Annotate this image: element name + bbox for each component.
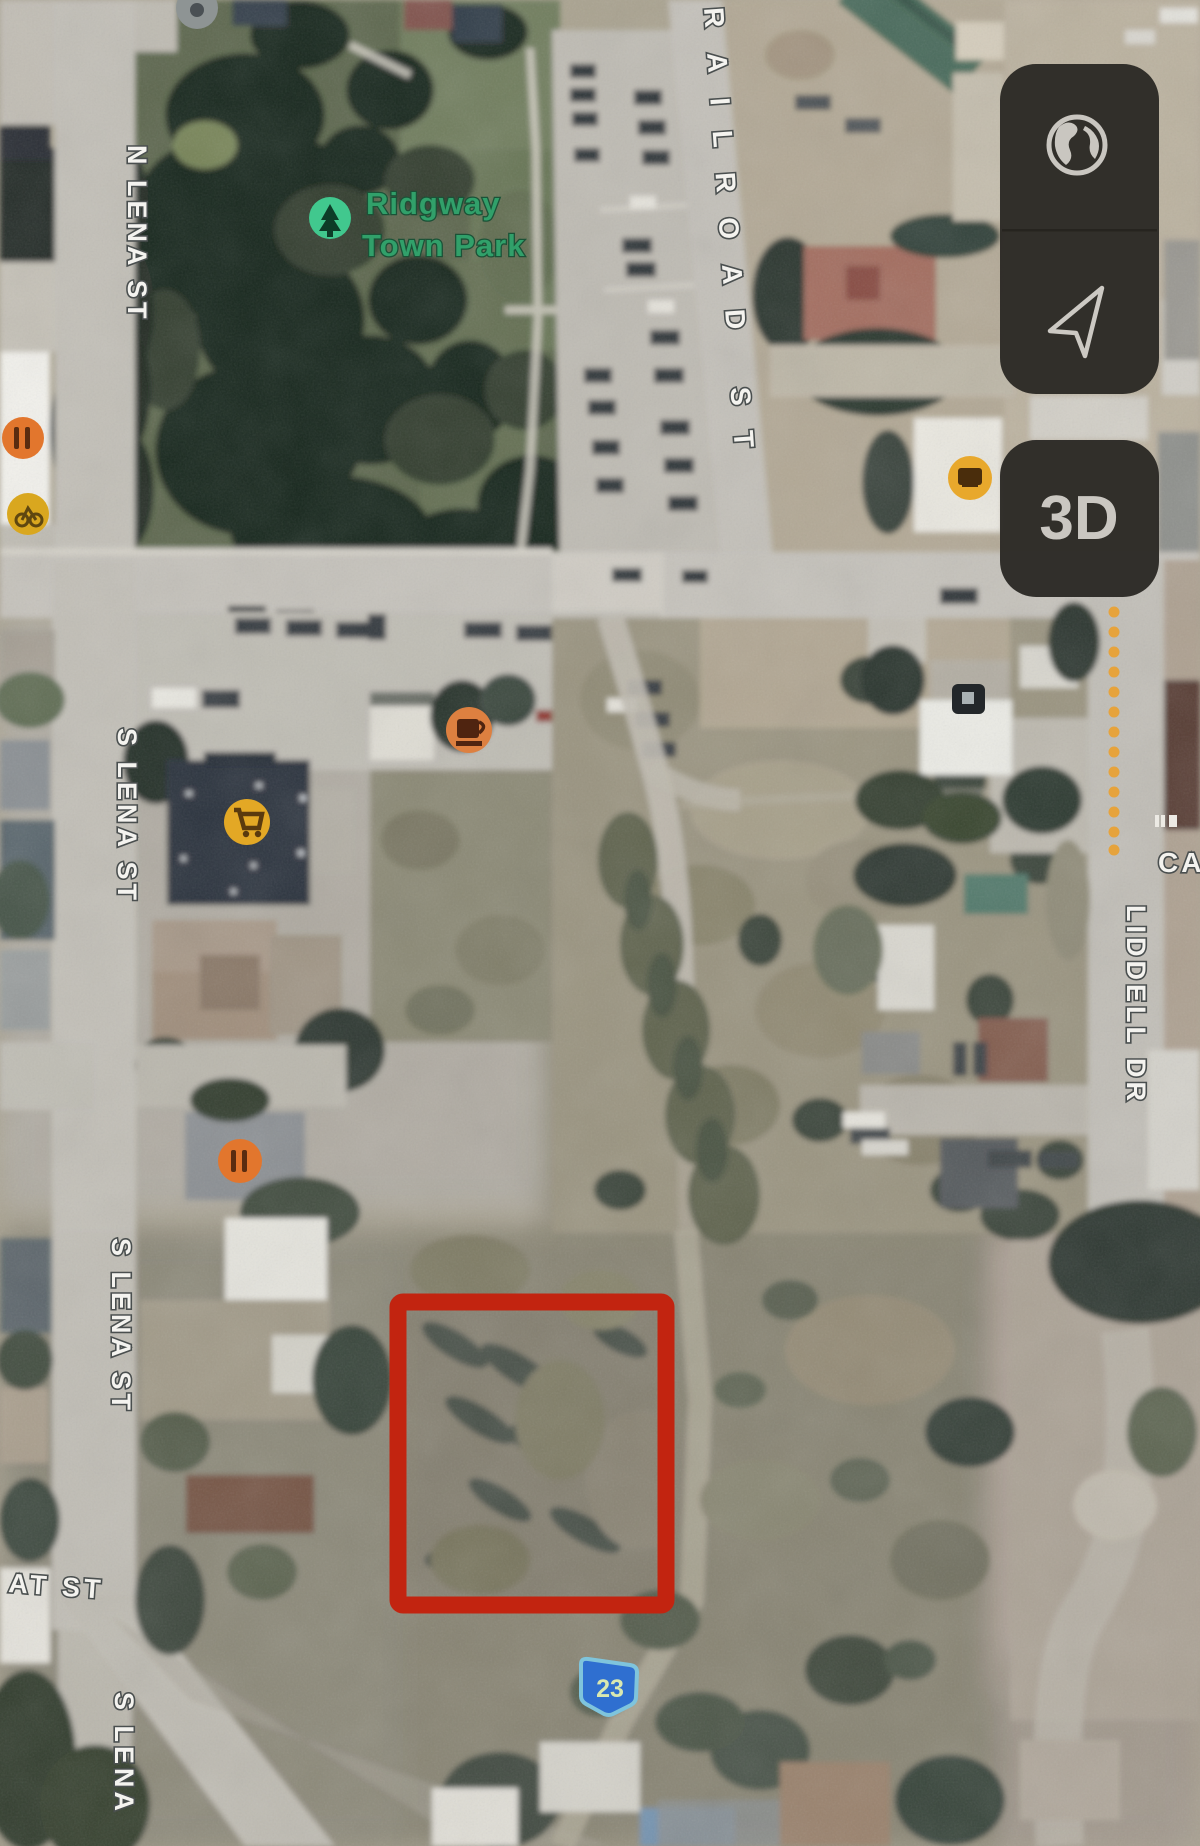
svg-text:23: 23: [596, 1675, 624, 1703]
svg-text:Ridgway: Ridgway: [366, 186, 500, 221]
svg-text:S LENA: S LENA: [109, 1692, 139, 1815]
svg-text:S LENA ST: S LENA ST: [112, 728, 142, 904]
svg-text:N LENA ST: N LENA ST: [122, 145, 152, 323]
svg-text:LIDDELL DR: LIDDELL DR: [1121, 905, 1151, 1105]
svg-text:CA: CA: [1158, 847, 1200, 878]
svg-text:Town Park: Town Park: [362, 228, 525, 263]
svg-text:S LENA ST: S LENA ST: [106, 1238, 136, 1414]
svg-text:3D: 3D: [1039, 484, 1118, 553]
